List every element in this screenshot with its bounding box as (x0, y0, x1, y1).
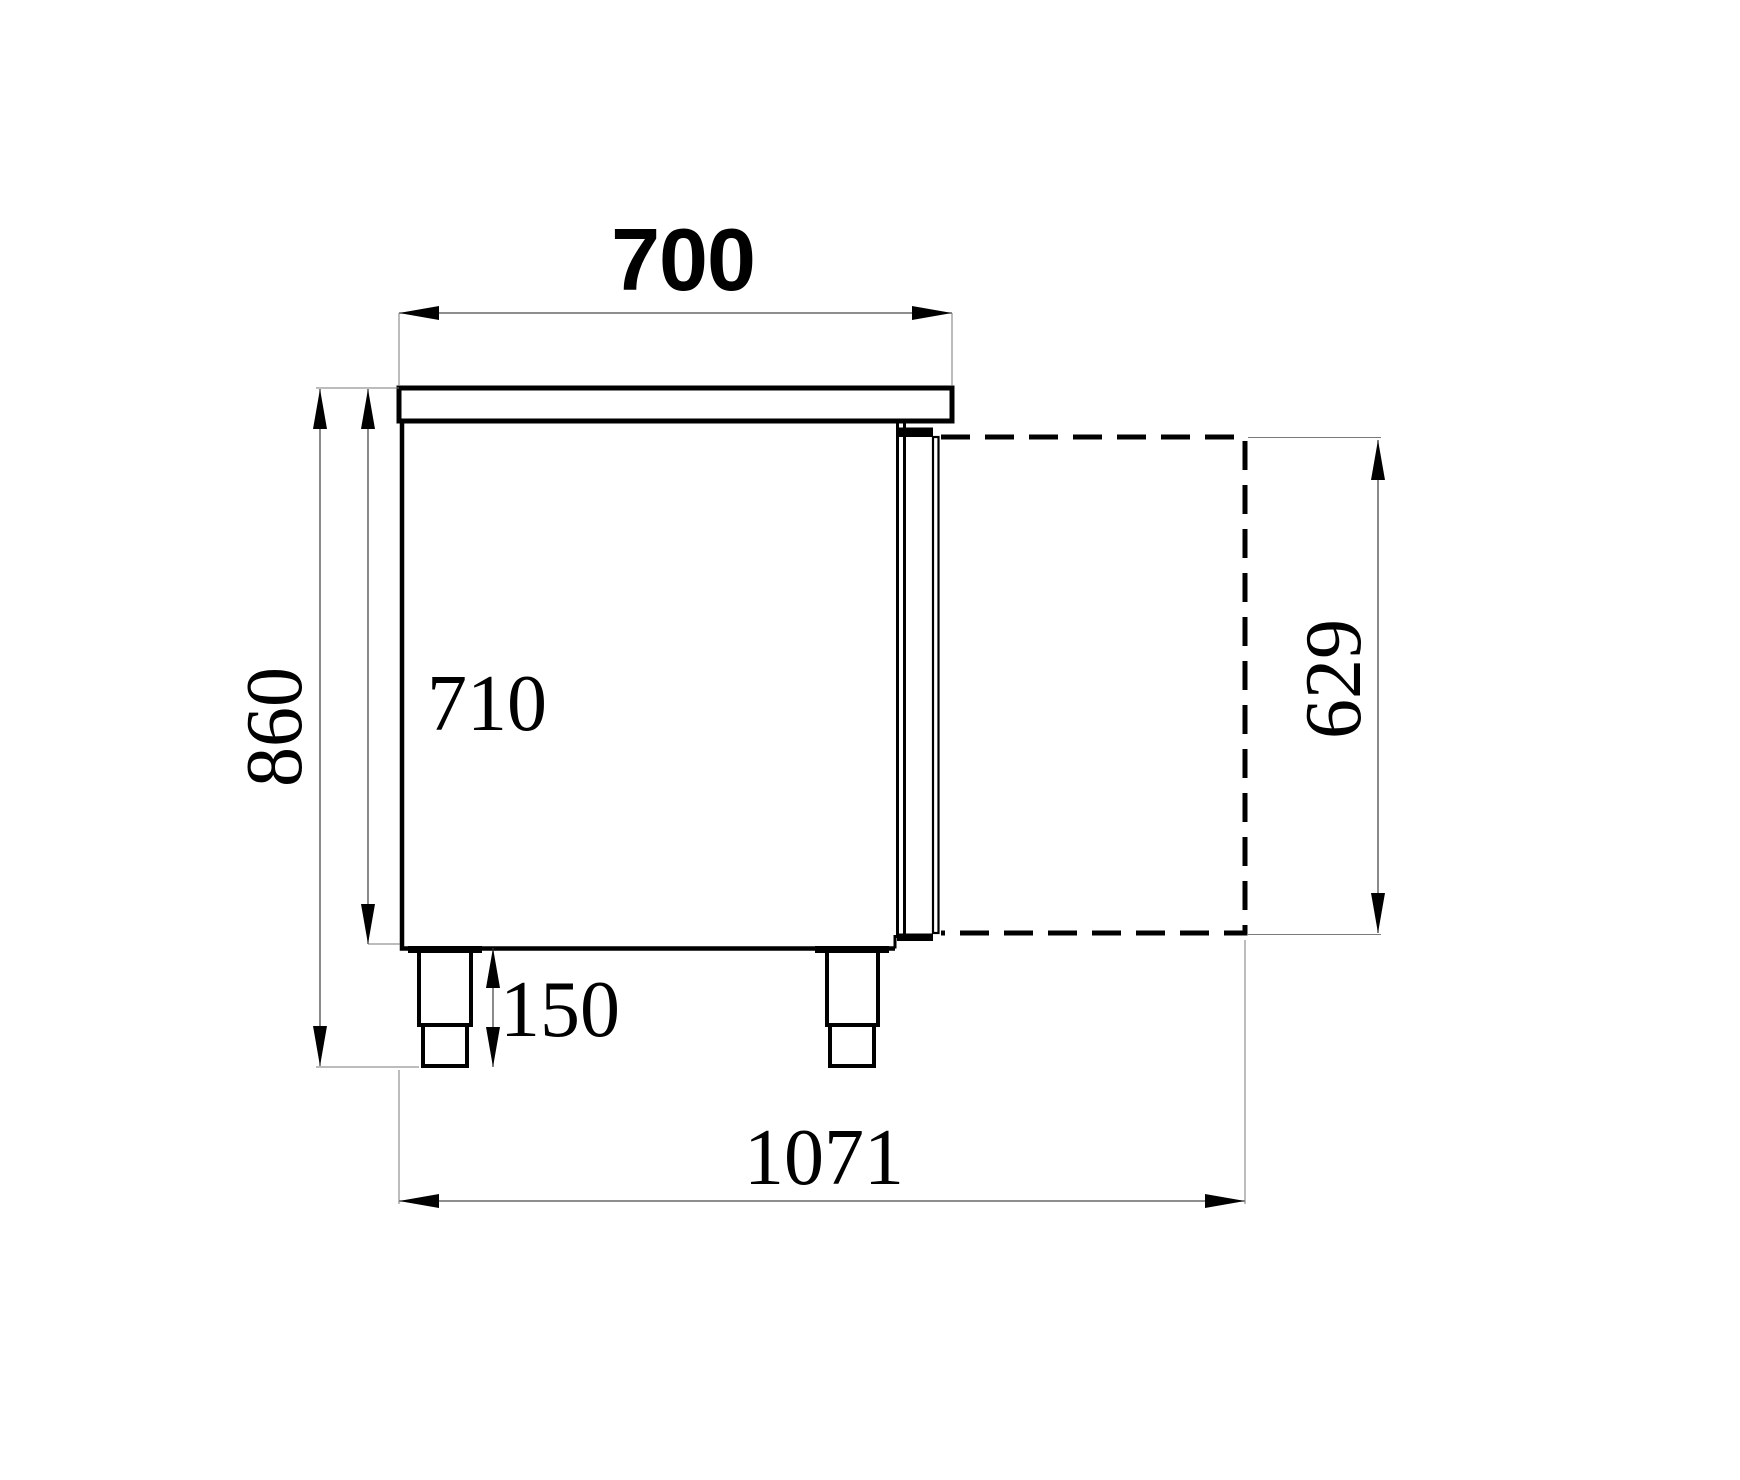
dim-label-body-height: 710 (427, 660, 547, 748)
arrowhead-down (361, 904, 375, 944)
dimension-body-height: 710 (361, 389, 547, 944)
dim-label-door-height: 629 (1290, 619, 1378, 739)
arrowhead-down (1371, 893, 1385, 933)
door-open-edge-panel (933, 437, 939, 933)
dimension-leg-height: 150 (486, 948, 620, 1067)
drawing-canvas: 700 860 710 150 1071 (0, 0, 1740, 1480)
dimension-top-width: 700 (399, 210, 952, 386)
arrowhead-right (1205, 1194, 1245, 1208)
arrowhead-up (1371, 440, 1385, 480)
dim-label-overall-height: 860 (231, 667, 319, 787)
leg-rear-upper (419, 951, 471, 1025)
door-hinge-bottom (897, 934, 933, 942)
leg-front-upper (827, 951, 878, 1025)
arrowhead-right (912, 306, 952, 320)
arrowhead-up (361, 389, 375, 429)
leg-rear-foot (423, 1025, 467, 1066)
arrowhead-up (313, 389, 327, 429)
arrowhead-down (313, 1026, 327, 1066)
arrowhead-left (399, 306, 439, 320)
arrowhead-left (399, 1194, 439, 1208)
door-swing-dashed-outline (941, 437, 1245, 933)
dimension-door-height: 629 (1248, 438, 1385, 935)
technical-drawing: 700 860 710 150 1071 (0, 0, 1740, 1480)
door-hinge-top (897, 428, 933, 438)
dim-label-overall-depth: 1071 (744, 1114, 904, 1202)
leg-front-foot (830, 1025, 874, 1066)
dim-label-leg-height: 150 (500, 966, 620, 1054)
arrowhead-up (486, 948, 500, 988)
arrowhead-down (486, 1027, 500, 1067)
worktop (399, 388, 952, 421)
dimension-overall-height: 860 (231, 388, 419, 1067)
dim-label-top-width: 700 (611, 210, 755, 309)
